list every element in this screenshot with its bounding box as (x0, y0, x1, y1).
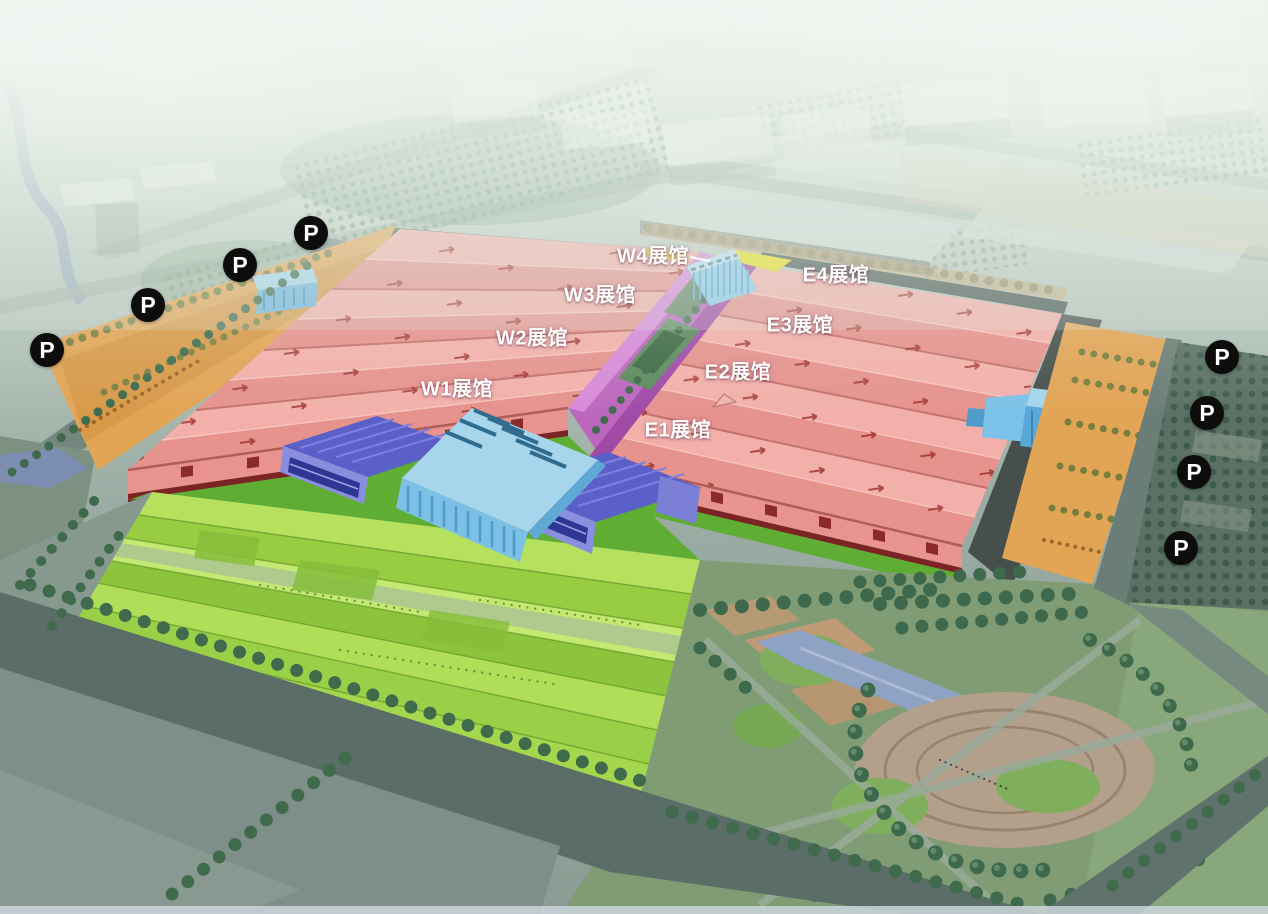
hall-label-w3: W3展馆 (564, 279, 636, 308)
parking-marker: P (223, 248, 257, 282)
parking-marker: P (1190, 396, 1224, 430)
hall-label-text: E1展馆 (645, 420, 711, 442)
map-label-layer: W1展馆 W2展馆 W3展馆 W4展馆 E1展馆 E2展馆 E3展馆 E4展馆 … (0, 0, 1268, 914)
hall-label-text: W2展馆 (496, 328, 568, 350)
parking-p-icon: P (1186, 461, 1201, 484)
parking-p-icon: P (39, 339, 54, 362)
parking-marker: P (1205, 340, 1239, 374)
parking-marker: P (30, 333, 64, 367)
parking-p-icon: P (1173, 537, 1188, 560)
hall-label-w4: W4展馆 (617, 240, 689, 269)
venue-map: W1展馆 W2展馆 W3展馆 W4展馆 E1展馆 E2展馆 E3展馆 E4展馆 … (0, 0, 1268, 914)
parking-p-icon: P (140, 294, 155, 317)
hall-label-w1: W1展馆 (421, 373, 493, 402)
hall-label-e4: E4展馆 (803, 259, 869, 288)
parking-marker: P (1177, 455, 1211, 489)
parking-p-icon: P (232, 254, 247, 277)
hall-label-text: W1展馆 (421, 379, 493, 401)
hall-label-text: W4展馆 (617, 246, 689, 268)
parking-marker: P (131, 288, 165, 322)
hall-label-e1: E1展馆 (645, 414, 711, 443)
hall-label-e3: E3展馆 (767, 309, 833, 338)
hall-label-w2: W2展馆 (496, 322, 568, 351)
hall-label-text: W3展馆 (564, 285, 636, 307)
hall-label-text: E2展馆 (705, 362, 771, 384)
hall-label-text: E3展馆 (767, 315, 833, 337)
parking-p-icon: P (1214, 346, 1229, 369)
hall-label-text: E4展馆 (803, 265, 869, 287)
parking-marker: P (294, 216, 328, 250)
hall-label-e2: E2展馆 (705, 356, 771, 385)
parking-p-icon: P (303, 222, 318, 245)
parking-p-icon: P (1199, 402, 1214, 425)
parking-marker: P (1164, 531, 1198, 565)
